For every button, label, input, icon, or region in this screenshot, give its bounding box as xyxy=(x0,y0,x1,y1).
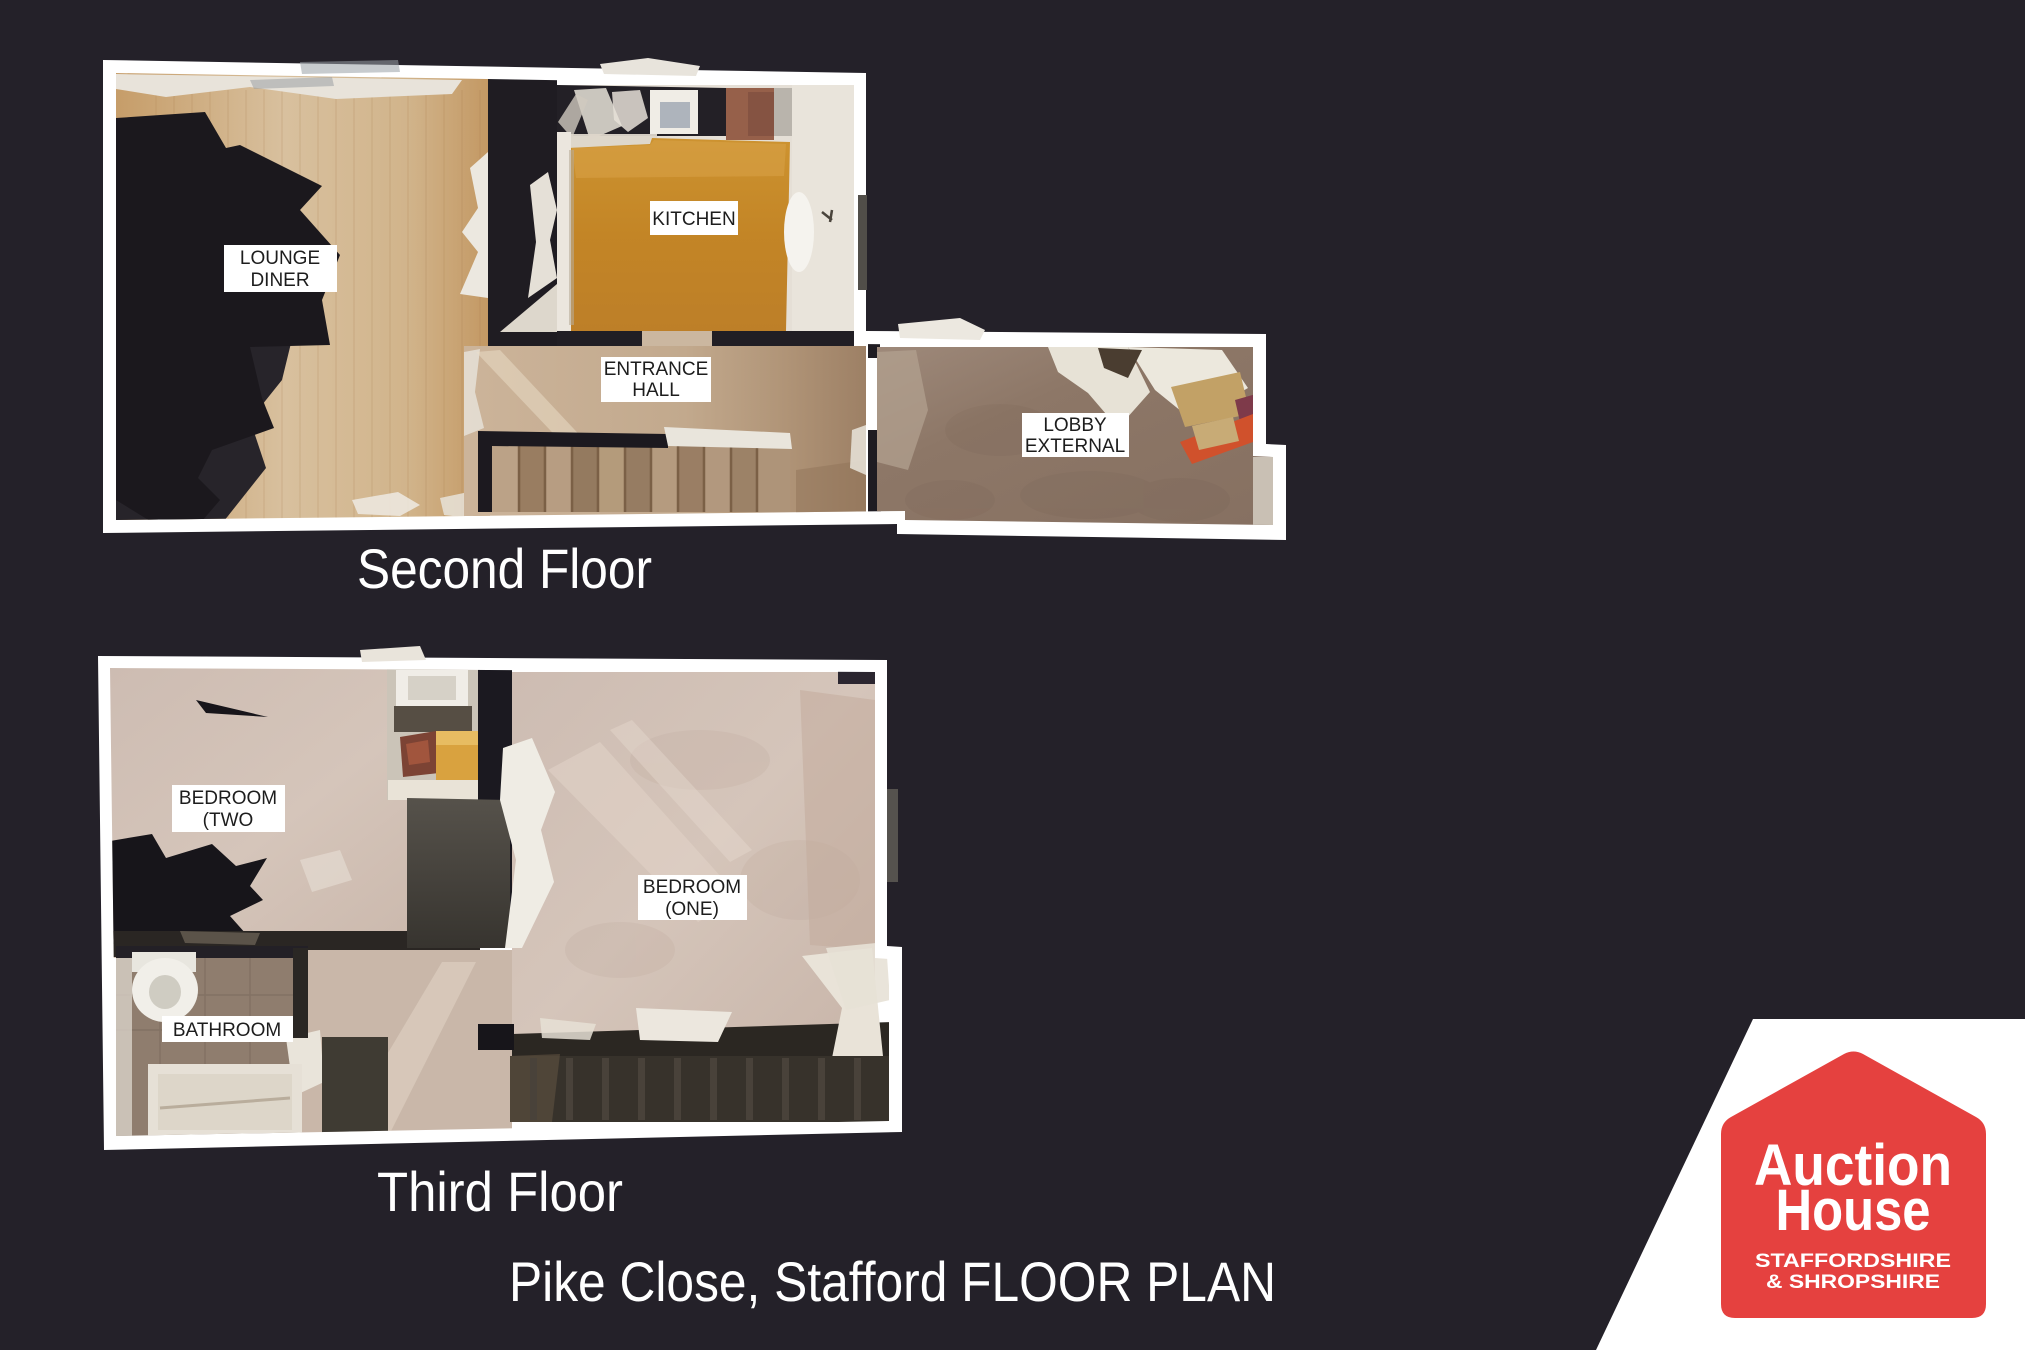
svg-text:LOBBY: LOBBY xyxy=(1043,415,1107,436)
svg-text:BEDROOM: BEDROOM xyxy=(643,877,741,898)
svg-text:DINER: DINER xyxy=(250,270,309,291)
svg-text:BATHROOM: BATHROOM xyxy=(173,1020,281,1041)
svg-text:& SHROPSHIRE: & SHROPSHIRE xyxy=(1766,1272,1940,1293)
svg-text:Third Floor: Third Floor xyxy=(377,1160,623,1223)
svg-text:EXTERNAL: EXTERNAL xyxy=(1025,436,1125,457)
svg-text:House: House xyxy=(1776,1178,1931,1243)
svg-text:HALL: HALL xyxy=(632,380,680,401)
svg-text:LOUNGE: LOUNGE xyxy=(240,248,320,269)
svg-text:Pike Close, Stafford FLOOR PLA: Pike Close, Stafford FLOOR PLAN xyxy=(509,1250,1276,1313)
svg-text:(TWO: (TWO xyxy=(203,810,254,831)
svg-text:(ONE): (ONE) xyxy=(665,899,719,920)
svg-text:Second Floor: Second Floor xyxy=(357,537,652,600)
svg-text:STAFFORDSHIRE: STAFFORDSHIRE xyxy=(1755,1251,1951,1272)
svg-text:BEDROOM: BEDROOM xyxy=(179,788,277,809)
svg-text:KITCHEN: KITCHEN xyxy=(652,209,735,230)
svg-text:ENTRANCE: ENTRANCE xyxy=(604,359,709,380)
